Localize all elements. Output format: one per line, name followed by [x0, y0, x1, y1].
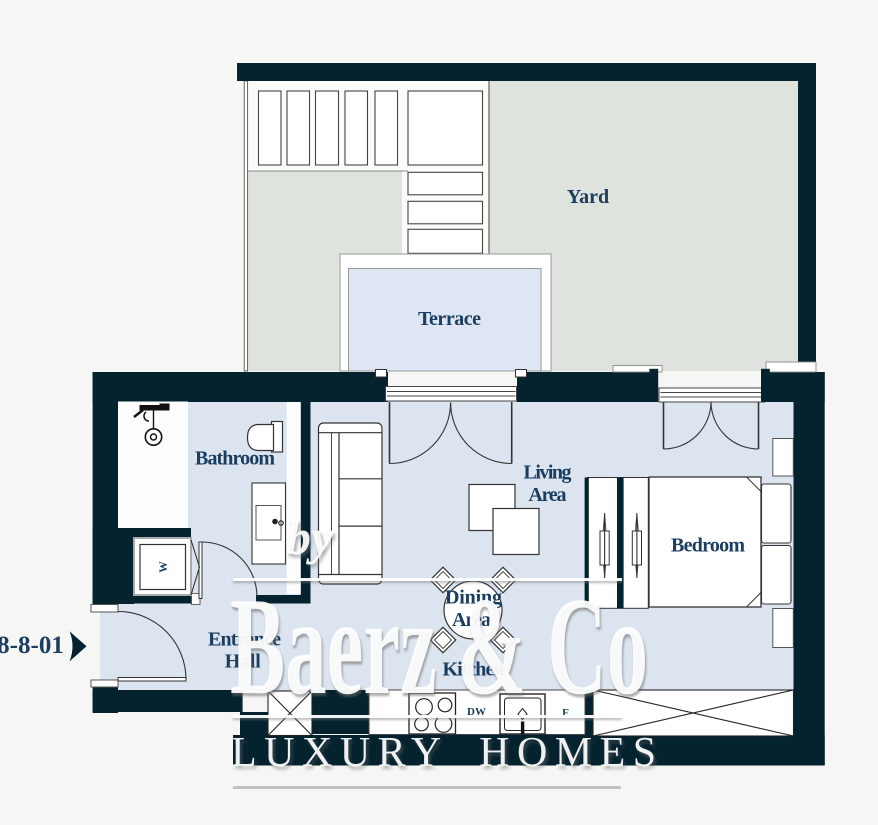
svg-text:8-8-01: 8-8-01: [0, 632, 64, 659]
svg-text:Yard: Yard: [567, 186, 609, 208]
svg-text:Living: Living: [524, 462, 572, 484]
svg-text:Bathroom: Bathroom: [195, 448, 275, 470]
svg-text:Terrace: Terrace: [418, 308, 481, 330]
svg-text:Area: Area: [529, 484, 567, 506]
svg-text:W: W: [158, 561, 170, 573]
svg-text:Bedroom: Bedroom: [671, 535, 745, 557]
